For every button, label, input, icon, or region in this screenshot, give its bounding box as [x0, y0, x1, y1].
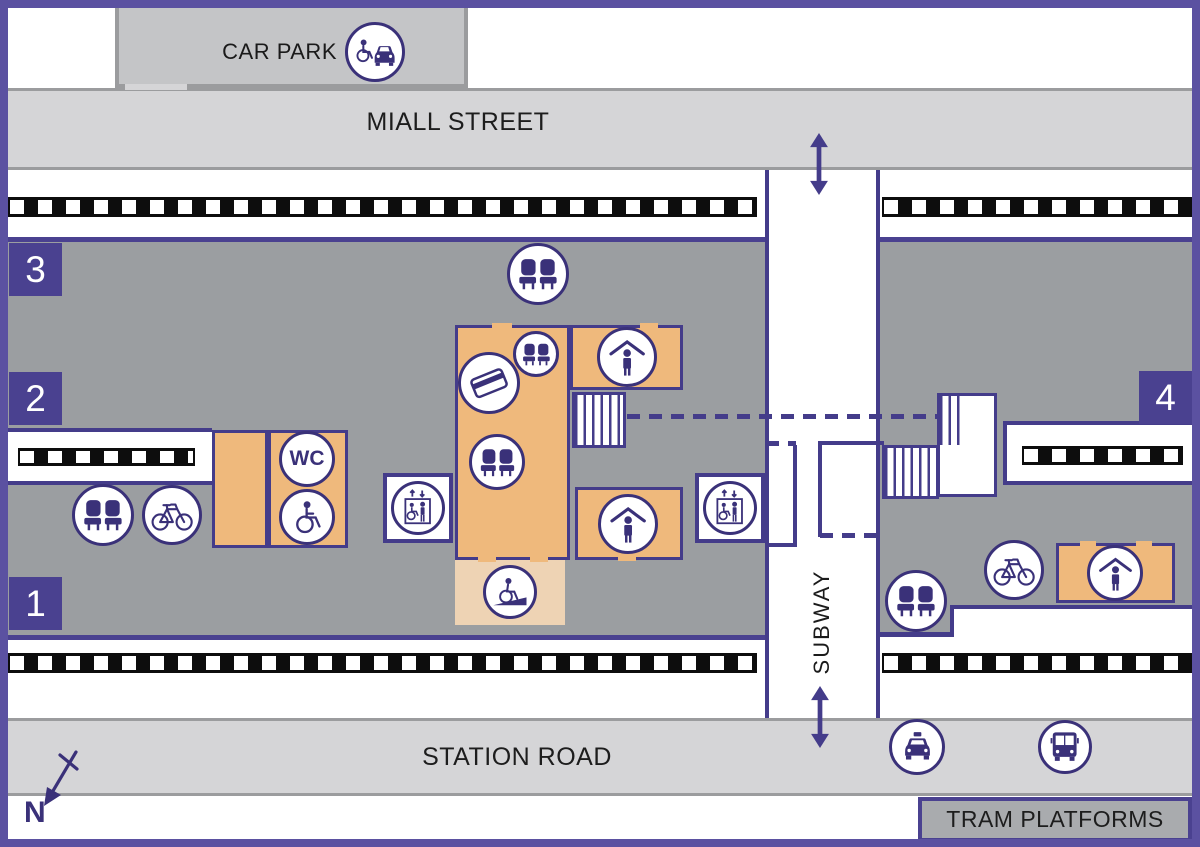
lift-enclosure	[695, 473, 765, 543]
accessible-toilet-icon	[279, 489, 335, 545]
track-south-west	[8, 653, 757, 673]
subway-wall	[818, 445, 822, 537]
platform-badge-2: 2	[9, 372, 62, 425]
tram-platforms: TRAM PLATFORMS	[918, 797, 1192, 842]
doorway	[618, 555, 636, 561]
accessible-parking-icon	[345, 22, 405, 82]
waiting-shelter-icon	[1087, 545, 1143, 601]
miall-street-label: MIALL STREET	[338, 108, 578, 137]
wc-label: WC	[282, 434, 332, 484]
doorway	[478, 556, 496, 562]
ticket-machine-icon	[458, 352, 520, 414]
lift-icon	[391, 481, 445, 535]
stairs-east-lower	[882, 445, 939, 499]
taxi-icon	[889, 719, 945, 775]
seats-icon	[72, 484, 134, 546]
tram-platforms-label: TRAM PLATFORMS	[946, 806, 1163, 833]
subway-arrow-south-icon	[807, 686, 833, 748]
track-north-east	[882, 197, 1192, 217]
seats-icon	[513, 331, 559, 377]
doorway	[530, 556, 548, 562]
subway-arrow-north-icon	[806, 133, 832, 195]
subway-label: SUBWAY	[802, 552, 842, 692]
lift-icon	[703, 481, 757, 535]
lift-enclosure	[383, 473, 453, 543]
island-east-bottom-border	[880, 632, 952, 637]
bay-track-west-rails	[18, 448, 195, 466]
station-road-label: STATION ROAD	[397, 743, 637, 772]
bus-icon	[1038, 720, 1092, 774]
waiting-shelter-icon	[598, 494, 658, 554]
waiting-shelter-icon	[597, 327, 657, 387]
subway-wall	[793, 445, 797, 547]
car-park-entrance-gap	[125, 84, 187, 90]
doorway	[492, 323, 512, 329]
track-south-east	[882, 653, 1192, 673]
station-map: CAR PARK MIALL STREET STATION ROAD SUBWA…	[0, 0, 1200, 847]
compass-north-label: N	[24, 796, 46, 830]
stairs-central	[572, 392, 626, 448]
miall-street	[8, 88, 1192, 170]
bay-track-east-rails	[1022, 446, 1183, 465]
east-walkway	[950, 605, 1192, 637]
platform-badge-1: 1	[9, 577, 62, 630]
subway-wall	[818, 441, 884, 445]
seats-icon	[885, 570, 947, 632]
route-dashed-line	[627, 414, 939, 419]
subway-wall	[769, 543, 797, 547]
wc-icon: WC	[279, 431, 335, 487]
subway-doorway-dashed	[766, 441, 796, 446]
bicycle-icon	[142, 485, 202, 545]
car-park-label: CAR PARK	[215, 39, 337, 65]
wheelchair-ramp-icon	[483, 565, 537, 619]
doorway	[1080, 541, 1096, 547]
platform-badge-3: 3	[9, 243, 62, 296]
doorway	[640, 323, 658, 329]
station-building-west-a	[212, 430, 268, 548]
stairs-east-upper	[940, 396, 963, 445]
platform-badge-4: 4	[1139, 371, 1192, 424]
doorway	[1136, 541, 1152, 547]
seats-icon	[469, 434, 525, 490]
seats-icon	[507, 243, 569, 305]
subway-doorway-dashed	[820, 533, 882, 538]
bicycle-icon	[984, 540, 1044, 600]
track-north-west	[8, 197, 757, 217]
